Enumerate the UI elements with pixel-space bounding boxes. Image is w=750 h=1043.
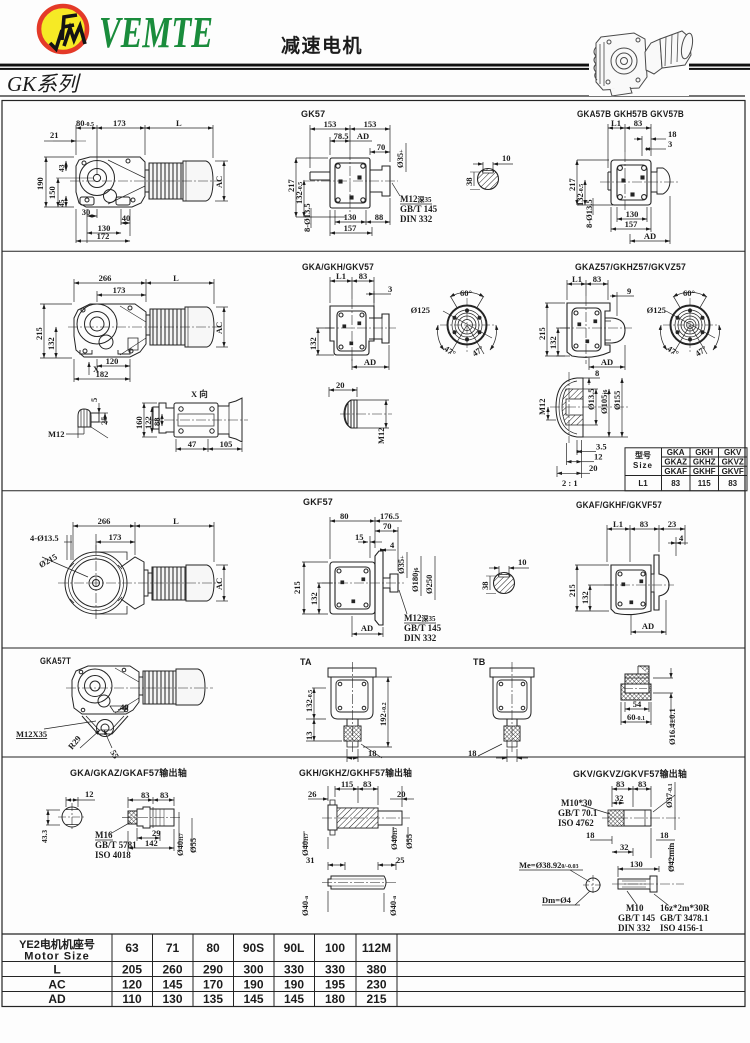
svg-text:132: 132 xyxy=(46,337,56,350)
svg-text:78.5: 78.5 xyxy=(334,131,349,141)
svg-text:M12深35: M12深35 xyxy=(404,613,436,623)
svg-text:GKAF: GKAF xyxy=(664,467,687,476)
svg-text:120: 120 xyxy=(106,356,119,366)
svg-text:40: 40 xyxy=(122,213,131,223)
svg-text:90L: 90L xyxy=(284,941,305,955)
svg-text:142: 142 xyxy=(145,838,158,848)
svg-text:3.5: 3.5 xyxy=(596,442,607,452)
svg-text:110: 110 xyxy=(122,992,142,1006)
svg-text:47°: 47° xyxy=(665,343,680,358)
svg-text:83: 83 xyxy=(634,118,643,128)
svg-text:9: 9 xyxy=(627,286,631,296)
svg-text:M12: M12 xyxy=(537,398,547,415)
svg-text:70: 70 xyxy=(383,521,392,531)
svg-text:3: 3 xyxy=(668,139,672,149)
svg-text:GKAZ57/GKHZ57/GKVZ57: GKAZ57/GKHZ57/GKVZ57 xyxy=(575,262,686,272)
svg-text:AC: AC xyxy=(214,578,224,590)
svg-text:Motor Size: Motor Size xyxy=(24,951,90,963)
svg-text:205: 205 xyxy=(122,963,142,977)
svg-text:172: 172 xyxy=(97,231,110,241)
svg-text:12: 12 xyxy=(594,452,603,462)
svg-text:M12: M12 xyxy=(376,427,386,444)
svg-text:L1: L1 xyxy=(336,271,346,281)
svg-text:215: 215 xyxy=(366,992,386,1006)
svg-text:215: 215 xyxy=(537,327,547,340)
svg-text:R29: R29 xyxy=(66,734,83,752)
svg-text:TA: TA xyxy=(300,657,312,667)
svg-text:60°: 60° xyxy=(460,288,472,298)
svg-text:GB/T 145: GB/T 145 xyxy=(618,913,656,923)
svg-text:25: 25 xyxy=(396,855,405,865)
svg-text:GKF57: GKF57 xyxy=(303,497,333,507)
svg-text:4: 4 xyxy=(679,533,684,543)
svg-text:L1: L1 xyxy=(572,274,582,284)
svg-text:8-Ø13.5: 8-Ø13.5 xyxy=(302,203,312,232)
svg-text:83: 83 xyxy=(160,790,169,800)
svg-text:Me=Ø38.920/-0.03: Me=Ø38.920/-0.03 xyxy=(519,860,579,870)
svg-text:173: 173 xyxy=(113,285,126,295)
svg-text:45: 45 xyxy=(57,199,66,207)
svg-text:130: 130 xyxy=(630,859,643,869)
svg-text:132: 132 xyxy=(308,337,318,350)
svg-text:90S: 90S xyxy=(243,941,264,955)
svg-text:83: 83 xyxy=(359,271,368,281)
svg-text:YE2电机机座号: YE2电机机座号 xyxy=(19,937,95,951)
svg-text:L1: L1 xyxy=(611,118,621,128)
svg-text:215: 215 xyxy=(34,327,44,340)
svg-text:Ø105j6: Ø105j6 xyxy=(599,390,609,414)
svg-text:Ø35+: Ø35+ xyxy=(395,149,405,168)
svg-text:290: 290 xyxy=(203,963,223,977)
svg-text:AD: AD xyxy=(364,357,376,367)
svg-text:4-Ø13.5: 4-Ø13.5 xyxy=(30,533,59,543)
svg-text:215: 215 xyxy=(292,581,302,594)
svg-text:GB/T 5781: GB/T 5781 xyxy=(95,840,137,850)
svg-text:266: 266 xyxy=(99,273,112,283)
svg-text:GB/T 145: GB/T 145 xyxy=(400,204,438,214)
svg-text:GKAF/GKHF/GKVF57: GKAF/GKHF/GKVF57 xyxy=(576,500,662,510)
svg-text:M16: M16 xyxy=(95,830,113,840)
svg-text:300: 300 xyxy=(243,963,263,977)
svg-text:26: 26 xyxy=(308,789,317,799)
svg-text:AD: AD xyxy=(644,231,656,241)
svg-text:83: 83 xyxy=(141,790,150,800)
svg-text:Ø40H7: Ø40H7 xyxy=(300,833,310,856)
svg-text:10: 10 xyxy=(502,153,511,163)
svg-text:170: 170 xyxy=(203,978,223,992)
svg-text:L1: L1 xyxy=(638,479,648,488)
svg-text:180: 180 xyxy=(325,992,345,1006)
svg-text:80-0.5: 80-0.5 xyxy=(76,118,94,128)
svg-text:GKA/GKAZ/GKAF57输出轴: GKA/GKAZ/GKAF57输出轴 xyxy=(70,767,187,778)
svg-text:Ø40H7: Ø40H7 xyxy=(389,827,399,850)
svg-text:40: 40 xyxy=(120,702,129,712)
svg-text:83: 83 xyxy=(638,779,647,789)
svg-text:83: 83 xyxy=(593,274,602,284)
svg-text:GKV/GKVZ/GKVF57输出轴: GKV/GKVZ/GKVF57输出轴 xyxy=(573,768,687,779)
svg-text:23: 23 xyxy=(668,519,677,529)
svg-text:Ø40-a: Ø40-a xyxy=(388,896,398,916)
svg-text:330: 330 xyxy=(325,963,345,977)
svg-text:190: 190 xyxy=(284,978,304,992)
svg-text:132: 132 xyxy=(580,591,590,604)
svg-text:88: 88 xyxy=(152,418,162,427)
svg-text:GB/T 70.1: GB/T 70.1 xyxy=(558,808,598,818)
svg-text:GKH/GKHZ/GKHF57输出轴: GKH/GKHZ/GKHF57输出轴 xyxy=(299,767,412,778)
svg-text:Dm=Ø4: Dm=Ø4 xyxy=(542,895,572,905)
svg-text:83: 83 xyxy=(728,479,737,488)
svg-text:Ø13.5: Ø13.5 xyxy=(586,389,596,411)
svg-text:型号: 型号 xyxy=(635,450,651,460)
svg-text:DIN 332: DIN 332 xyxy=(618,923,651,933)
svg-text:20: 20 xyxy=(589,463,598,473)
svg-text:Ø40H7: Ø40H7 xyxy=(175,833,185,856)
svg-text:18: 18 xyxy=(586,830,595,840)
svg-text:145: 145 xyxy=(243,992,263,1006)
svg-text:190: 190 xyxy=(243,978,263,992)
svg-text:132: 132 xyxy=(309,592,319,605)
svg-text:18: 18 xyxy=(660,830,669,840)
svg-text:100: 100 xyxy=(325,941,345,955)
svg-text:173: 173 xyxy=(109,532,122,542)
svg-text:105: 105 xyxy=(220,439,233,449)
svg-text:63: 63 xyxy=(125,941,139,955)
svg-text:112M: 112M xyxy=(362,941,391,955)
svg-text:71: 71 xyxy=(166,941,180,955)
svg-text:83: 83 xyxy=(671,479,680,488)
svg-text:150: 150 xyxy=(47,186,57,199)
svg-text:47: 47 xyxy=(188,439,197,449)
svg-text:18: 18 xyxy=(468,748,477,758)
svg-text:60-0.1: 60-0.1 xyxy=(627,712,645,722)
svg-text:15: 15 xyxy=(355,532,364,542)
svg-text:Ø215: Ø215 xyxy=(37,551,59,569)
svg-text:L: L xyxy=(173,273,179,283)
svg-text:GKA57B GKH57B GKV57B: GKA57B GKH57B GKV57B xyxy=(577,109,684,119)
svg-text:120: 120 xyxy=(122,978,142,992)
svg-text:215: 215 xyxy=(567,584,577,597)
svg-text:54: 54 xyxy=(633,699,642,709)
svg-text:230: 230 xyxy=(366,978,386,992)
svg-text:132: 132 xyxy=(548,336,558,349)
svg-text:GB/T 145: GB/T 145 xyxy=(404,623,442,633)
svg-text:20: 20 xyxy=(336,380,345,390)
svg-text:GKVF: GKVF xyxy=(722,467,744,476)
svg-text:GKA: GKA xyxy=(667,448,685,457)
svg-text:16z*2m*30R: 16z*2m*30R xyxy=(660,903,710,913)
svg-text:Ø55: Ø55 xyxy=(188,838,198,853)
svg-text:AD: AD xyxy=(357,131,369,141)
svg-text:47°: 47° xyxy=(693,344,708,359)
svg-text:32: 32 xyxy=(620,842,629,852)
svg-text:L: L xyxy=(53,963,60,977)
svg-text:18: 18 xyxy=(368,748,377,758)
svg-text:21: 21 xyxy=(50,130,59,140)
svg-text:Ø40-a: Ø40-a xyxy=(300,896,310,916)
svg-text:130: 130 xyxy=(344,212,357,222)
svg-text:43: 43 xyxy=(57,164,66,172)
svg-text:GK57: GK57 xyxy=(301,109,325,119)
svg-text:DIN 332: DIN 332 xyxy=(404,633,437,643)
svg-text:38: 38 xyxy=(480,582,490,591)
svg-text:VEMTE: VEMTE xyxy=(99,8,213,57)
svg-text:176.5: 176.5 xyxy=(380,511,399,521)
svg-text:38: 38 xyxy=(464,178,474,187)
svg-text:13: 13 xyxy=(304,732,314,741)
svg-text:GKA57T: GKA57T xyxy=(40,656,71,666)
svg-text:266: 266 xyxy=(98,516,111,526)
svg-text:Ø35+: Ø35+ xyxy=(396,555,406,574)
svg-text:M12X35: M12X35 xyxy=(16,729,47,739)
svg-text:60°: 60° xyxy=(683,288,695,298)
svg-text:L: L xyxy=(173,516,179,526)
svg-text:18: 18 xyxy=(668,129,677,139)
svg-text:157: 157 xyxy=(625,219,639,229)
svg-text:5: 5 xyxy=(89,398,99,402)
svg-text:Ø16.4±0.1: Ø16.4±0.1 xyxy=(667,708,677,745)
svg-text:145: 145 xyxy=(284,992,304,1006)
svg-text:83: 83 xyxy=(616,779,625,789)
svg-text:TB: TB xyxy=(473,657,486,667)
svg-text:195: 195 xyxy=(325,978,345,992)
svg-text:47°: 47° xyxy=(470,344,485,359)
svg-text:20: 20 xyxy=(397,789,406,799)
svg-text:DIN 332: DIN 332 xyxy=(400,214,433,224)
svg-text:GK系列: GK系列 xyxy=(7,72,81,96)
svg-text:ISO 4762: ISO 4762 xyxy=(558,818,594,828)
svg-text:32: 32 xyxy=(615,793,624,803)
svg-text:217: 217 xyxy=(286,179,296,193)
svg-text:83: 83 xyxy=(363,779,372,789)
svg-text:M10: M10 xyxy=(626,903,644,913)
svg-text:153: 153 xyxy=(324,119,337,129)
svg-text:88: 88 xyxy=(375,212,384,222)
svg-text:3: 3 xyxy=(388,284,392,294)
svg-text:L1: L1 xyxy=(613,519,623,529)
svg-text:Ø42min: Ø42min xyxy=(666,842,676,872)
svg-text:8: 8 xyxy=(595,368,599,378)
svg-text:Ø250: Ø250 xyxy=(424,575,434,594)
svg-text:GKHZ: GKHZ xyxy=(693,458,716,467)
svg-text:AC: AC xyxy=(48,978,66,992)
svg-text:43.3: 43.3 xyxy=(40,830,49,843)
svg-text:Size: Size xyxy=(633,461,653,470)
svg-text:AC: AC xyxy=(214,322,224,334)
svg-text:M10*30: M10*30 xyxy=(561,798,592,808)
svg-text:145: 145 xyxy=(162,978,182,992)
svg-text:AD: AD xyxy=(642,621,654,631)
svg-text:Ø125: Ø125 xyxy=(411,305,430,315)
svg-text:29: 29 xyxy=(152,828,161,838)
svg-text:Ø180j6: Ø180j6 xyxy=(410,568,420,592)
svg-text:X: X xyxy=(93,364,100,374)
svg-text:260: 260 xyxy=(162,963,182,977)
svg-text:X 向: X 向 xyxy=(191,389,208,399)
svg-text:Ø155: Ø155 xyxy=(612,391,622,410)
svg-text:GKAZ: GKAZ xyxy=(664,458,687,467)
svg-text:8-Ø13.5: 8-Ø13.5 xyxy=(584,199,594,228)
svg-text:GB/T 3478.1: GB/T 3478.1 xyxy=(660,913,709,923)
svg-text:L: L xyxy=(176,118,182,128)
svg-text:115: 115 xyxy=(341,779,353,789)
svg-text:GKHF: GKHF xyxy=(693,467,716,476)
svg-text:ISO 4018: ISO 4018 xyxy=(95,850,131,860)
svg-text:GKV: GKV xyxy=(724,448,742,457)
svg-text:217: 217 xyxy=(567,178,577,192)
svg-text:AD: AD xyxy=(361,623,373,633)
svg-text:AC: AC xyxy=(214,176,224,188)
svg-text:132-0.5: 132-0.5 xyxy=(304,690,314,712)
svg-text:31: 31 xyxy=(306,855,315,865)
svg-text:135: 135 xyxy=(203,992,223,1006)
svg-text:AD: AD xyxy=(48,992,66,1006)
svg-text:10: 10 xyxy=(518,557,527,567)
svg-text:Ø37-0.1: Ø37-0.1 xyxy=(664,783,674,808)
svg-text:130: 130 xyxy=(626,209,639,219)
svg-text:153: 153 xyxy=(364,119,377,129)
svg-text:130: 130 xyxy=(162,992,182,1006)
svg-text:Ø55: Ø55 xyxy=(404,834,414,849)
svg-text:70: 70 xyxy=(377,142,386,152)
svg-text:380: 380 xyxy=(366,963,386,977)
svg-text:GKH: GKH xyxy=(695,448,713,457)
svg-text:M12: M12 xyxy=(48,429,65,439)
svg-text:192+0.2: 192+0.2 xyxy=(378,702,388,726)
svg-text:173: 173 xyxy=(113,118,126,128)
svg-text:47°: 47° xyxy=(442,343,457,358)
svg-text:4: 4 xyxy=(390,540,395,550)
svg-text:115: 115 xyxy=(698,479,711,488)
svg-text:190: 190 xyxy=(35,177,45,190)
svg-text:330: 330 xyxy=(284,963,304,977)
svg-text:Ø125: Ø125 xyxy=(647,305,666,315)
svg-text:AD: AD xyxy=(601,357,613,367)
svg-text:80: 80 xyxy=(206,941,220,955)
svg-text:2 : 1: 2 : 1 xyxy=(562,478,578,488)
svg-text:55: 55 xyxy=(108,748,121,760)
svg-text:30: 30 xyxy=(82,207,91,217)
svg-text:25: 25 xyxy=(99,417,109,426)
svg-text:157: 157 xyxy=(344,223,358,233)
svg-text:80: 80 xyxy=(340,511,349,521)
svg-text:减速电机: 减速电机 xyxy=(281,34,363,57)
svg-text:M12深35: M12深35 xyxy=(400,194,432,204)
svg-text:83: 83 xyxy=(640,519,649,529)
svg-text:ISO 4156-1: ISO 4156-1 xyxy=(660,923,704,933)
svg-text:GKVZ: GKVZ xyxy=(722,458,744,467)
svg-text:12: 12 xyxy=(85,789,94,799)
